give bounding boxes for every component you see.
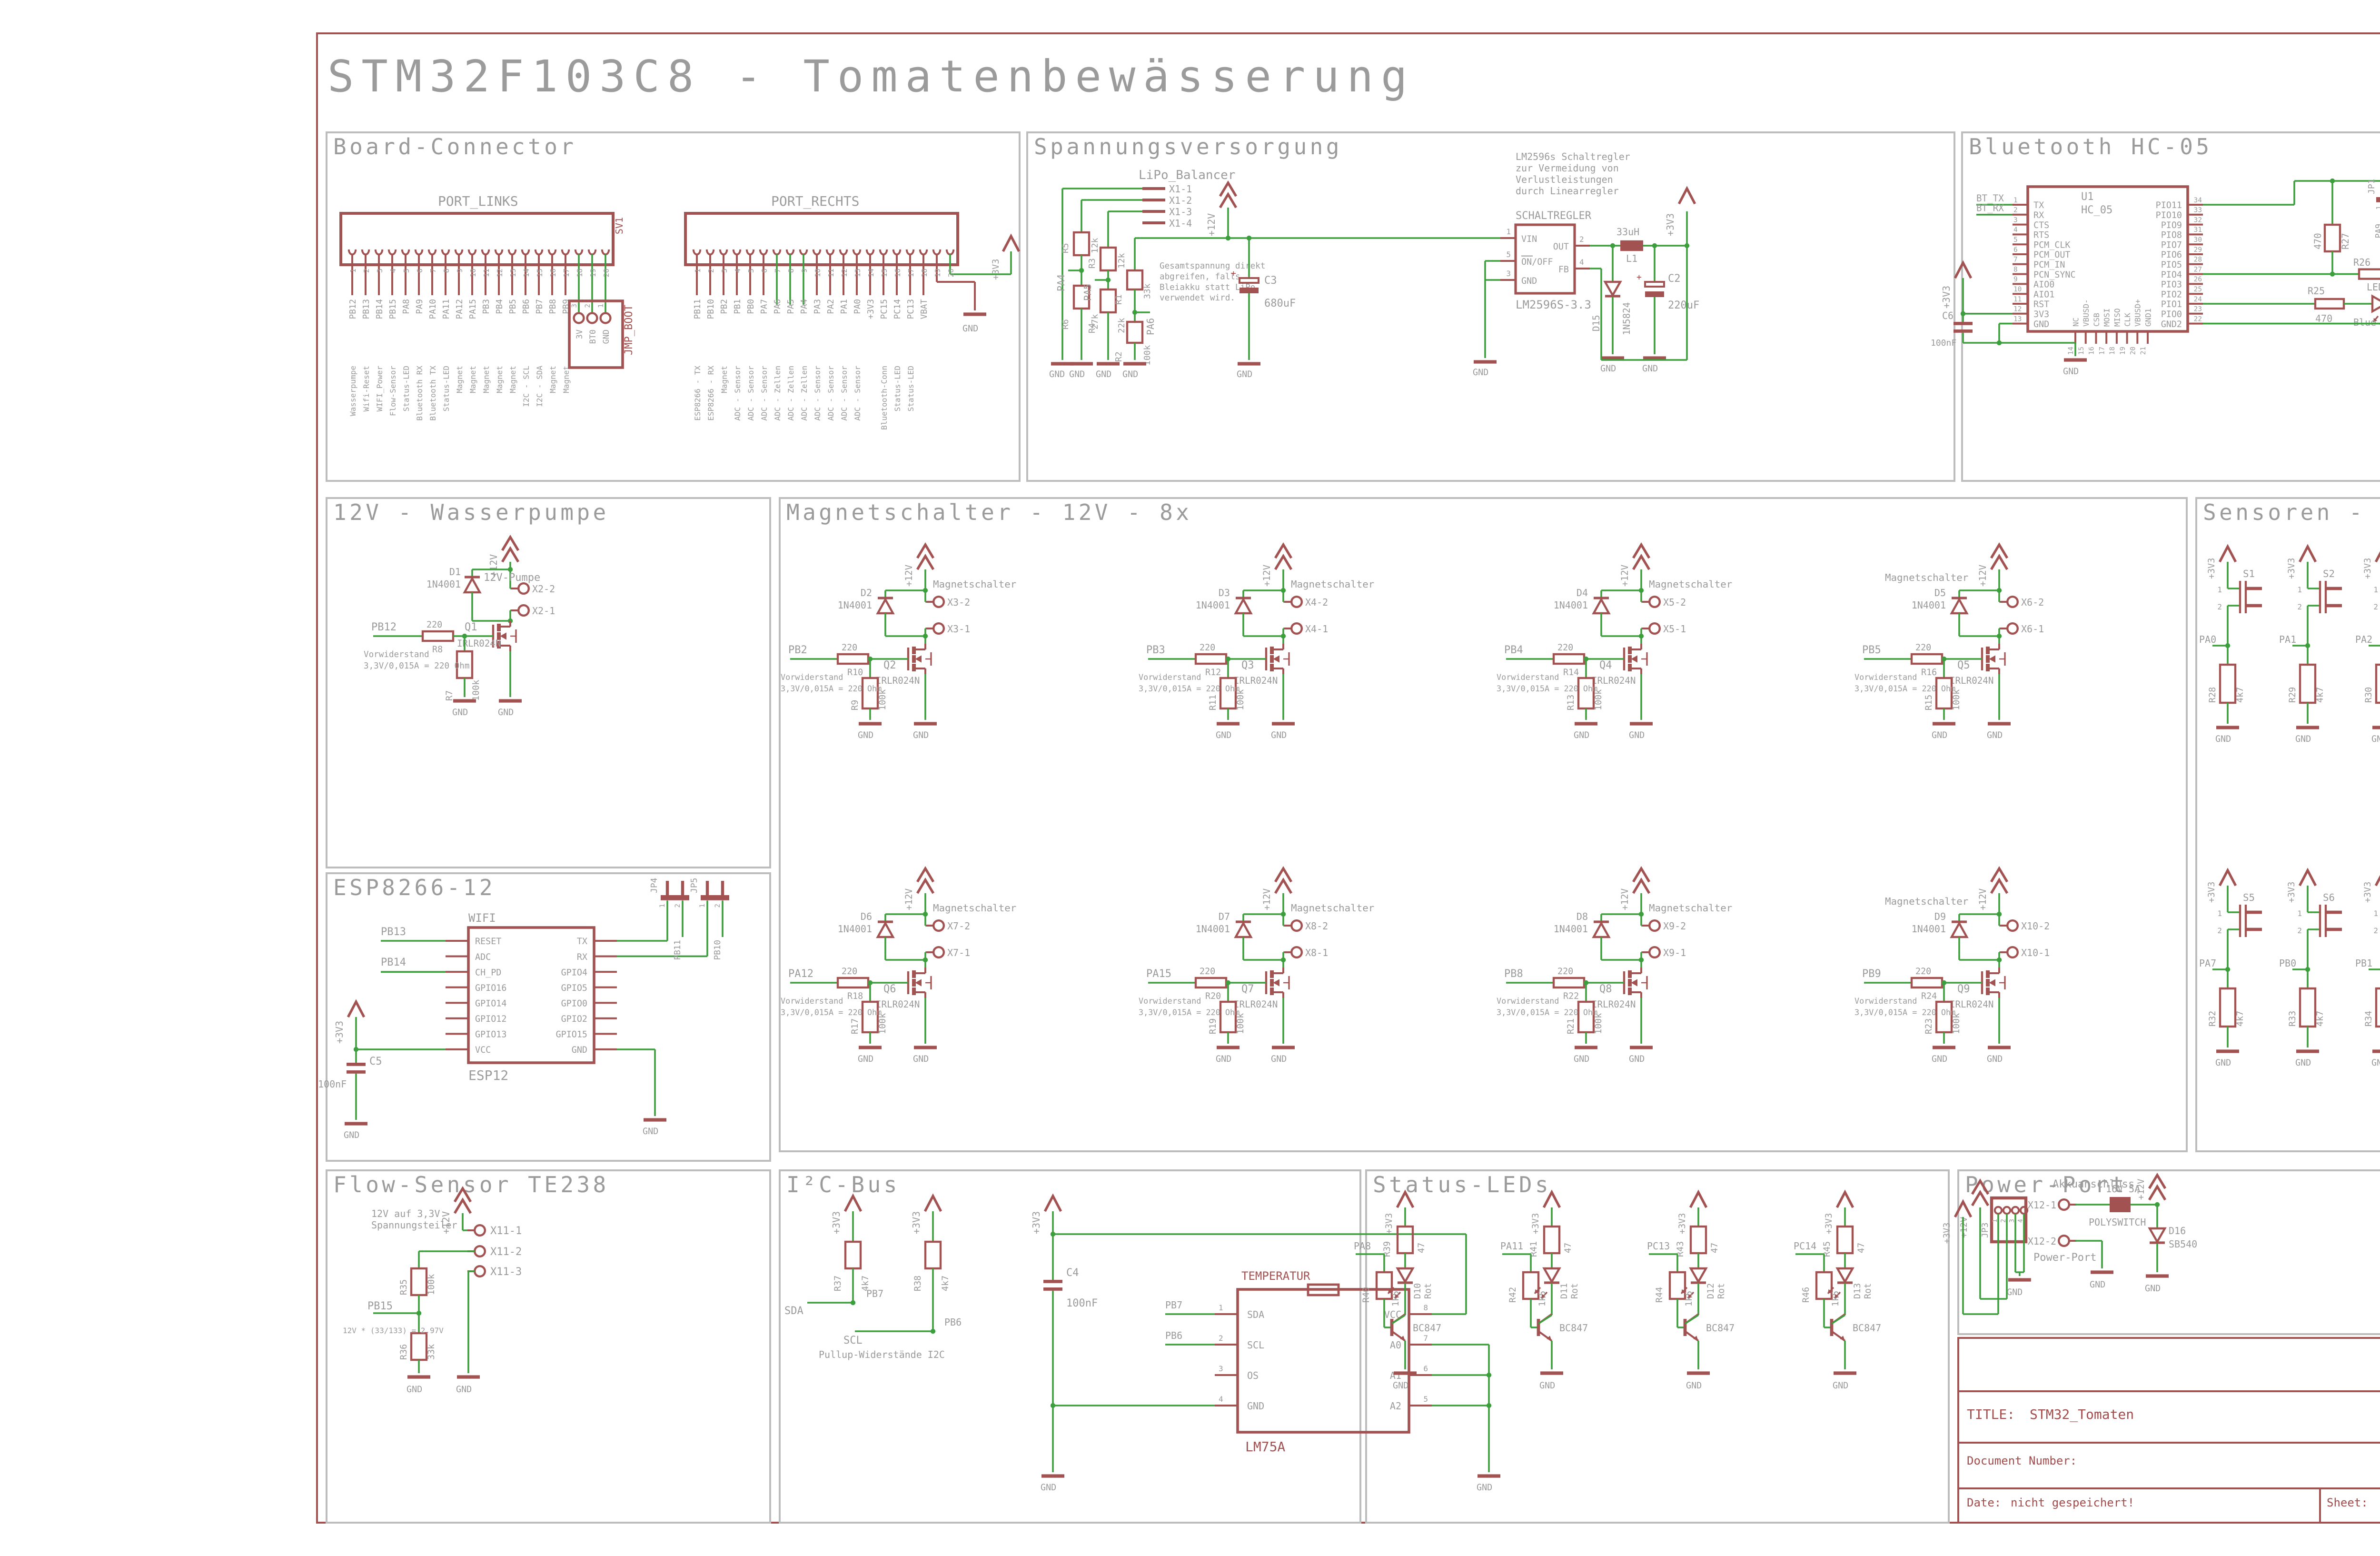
gnd-label: GND	[913, 730, 929, 740]
net-label: PA5	[1082, 284, 1093, 301]
pin-hook	[349, 249, 356, 254]
pin-number: 8	[1423, 1303, 1428, 1312]
label: 47	[1417, 1243, 1427, 1253]
part-bc847: BC847	[1706, 1322, 1735, 1334]
net-label: PB3	[482, 299, 491, 314]
p12v-label: +12V	[903, 564, 914, 587]
capacitor-C4	[1043, 1287, 1062, 1291]
label: C5	[369, 1056, 382, 1067]
ref-S2: S2	[2323, 568, 2335, 579]
label: Q8	[1599, 983, 1612, 995]
pin-name: AIO0	[2033, 280, 2054, 290]
label: R28	[2208, 687, 2218, 703]
led-D11	[1544, 1268, 1559, 1282]
pin-number: 1	[349, 269, 357, 273]
pin-name: ADC	[475, 952, 491, 962]
label: 1k5	[1684, 1291, 1694, 1307]
pin-number: 7	[773, 269, 782, 273]
pin-number: 23	[2194, 306, 2202, 313]
pin-function: Status-LED	[906, 366, 915, 411]
part-bc847: BC847	[1853, 1322, 1881, 1334]
connector-X4-2	[1291, 597, 1302, 607]
net-label: PA0	[2199, 634, 2216, 645]
p3v3-arrow	[1544, 1192, 1560, 1207]
pin-name: PIO4	[2161, 270, 2182, 280]
jmp-net-label: BT0	[588, 329, 597, 344]
p12v-arrow	[502, 549, 518, 562]
label: R16	[1921, 668, 1937, 678]
gnd-label: GND	[962, 324, 978, 334]
port-rechts-label: PORT_RECHTS	[771, 193, 859, 209]
pin-hook	[429, 249, 436, 254]
note-text: 3,3V/0,015A = 220 Ohm	[781, 1007, 882, 1017]
label: D16	[2169, 1225, 2186, 1237]
pin-function: Magnet	[455, 366, 464, 393]
pin-number: 3	[1506, 269, 1511, 278]
magnetschalter-label: Magnetschalter	[1649, 579, 1732, 590]
label: 4k7	[2315, 687, 2325, 703]
pin-name: MOSI	[2102, 308, 2112, 327]
pin-hook	[947, 249, 953, 254]
formula-text: 12V * (33/133) = 2,97V	[343, 1326, 444, 1335]
net-label: PA0	[853, 299, 863, 314]
gnd-label: GND	[1049, 369, 1065, 379]
connector-label: X12-1	[2028, 1199, 2056, 1211]
gnd-label: GND	[1932, 730, 1947, 740]
net-label: PA4	[1055, 274, 1067, 291]
label: Rot	[1863, 1283, 1873, 1299]
note-text: Pullup-Widerstände I2C	[819, 1349, 945, 1360]
pin-name: PCM_IN	[2033, 260, 2065, 270]
pin-function: ESP8266 - RX	[706, 366, 715, 421]
pin-hook	[773, 249, 780, 254]
pin-name: AIO1	[2033, 289, 2054, 299]
pin-name: CLK	[2123, 313, 2132, 327]
pin-name: TX	[577, 937, 587, 947]
connector-X9-2	[1649, 920, 1660, 931]
capacitor-C5	[347, 1063, 366, 1066]
diode-D2	[878, 599, 893, 613]
label: 47	[1856, 1243, 1866, 1253]
gnd-label: GND	[1393, 1381, 1408, 1391]
diode-D3	[1236, 599, 1251, 613]
pin-hook	[920, 249, 927, 254]
ref-jp4: JP4	[649, 878, 659, 893]
pin-name: GPIO4	[561, 968, 587, 977]
mosfet-Q3	[1273, 655, 1279, 662]
p12v-label: +12V	[1619, 564, 1630, 587]
pin-number: 18	[920, 269, 929, 277]
pin-function: Magnet	[508, 366, 517, 393]
led-D10	[1398, 1268, 1413, 1282]
pin-number: 6	[760, 269, 769, 273]
label: C6	[1942, 310, 1954, 321]
p3v3-label: +3V3	[1824, 1213, 1834, 1234]
label: Rot	[1716, 1283, 1726, 1299]
pin-number: 7	[1423, 1334, 1428, 1343]
p3v3-arrow	[2376, 547, 2380, 562]
resistor-R24	[1912, 978, 1942, 987]
label: R6	[1061, 319, 1071, 329]
p3v3-label: +3V3	[2207, 558, 2217, 579]
junction-dot	[1487, 1403, 1491, 1408]
pin-hook	[720, 249, 727, 254]
label: R38	[913, 1276, 923, 1291]
label: 100k	[471, 680, 481, 701]
pin-number: 2	[2013, 207, 2018, 214]
label: 47	[1710, 1243, 1720, 1253]
diode-D15	[1605, 282, 1620, 295]
p12v-arrow	[917, 880, 933, 893]
label: R30	[2364, 687, 2374, 703]
resistor-R14	[1554, 654, 1584, 664]
net-label: PB10	[713, 940, 723, 960]
label: 33k	[1142, 283, 1152, 299]
p3v3-arrow	[1045, 1196, 1061, 1211]
pin-number: 19	[589, 269, 597, 277]
label: Rot	[1423, 1283, 1433, 1299]
label: R22	[1563, 991, 1579, 1001]
label: D10	[1413, 1283, 1423, 1299]
label: R35	[399, 1279, 409, 1295]
pin-name: PIO1	[2161, 299, 2182, 309]
pin-number: 2	[674, 904, 682, 908]
gnd-label: GND	[1600, 364, 1616, 374]
label: IRLR024N	[1950, 999, 1993, 1010]
connector-label: X3-2	[947, 597, 970, 608]
label: 220	[426, 620, 442, 630]
label: 470	[2312, 233, 2323, 249]
net-label: PA6	[1145, 318, 1156, 335]
net-wire	[1685, 1315, 1698, 1324]
label: R37	[833, 1276, 843, 1291]
connector-label: X11-2	[490, 1246, 522, 1258]
pin-hook	[800, 249, 807, 254]
label: 220uF	[1668, 299, 1699, 311]
label: Q3	[1241, 659, 1254, 671]
label: 1N4001	[838, 923, 872, 935]
diode-D16	[2150, 1228, 2165, 1242]
net-label: PA8	[1354, 1240, 1371, 1252]
pin-number: 26	[2194, 276, 2202, 283]
pin-function: Bluetooth RX	[415, 366, 424, 421]
resistor-R44	[1670, 1272, 1685, 1299]
pin-name: PIO8	[2161, 230, 2182, 240]
resistor-R45	[1837, 1227, 1853, 1253]
p3v3-label: +3V3	[1677, 1213, 1687, 1234]
connector-label: X6-1	[2021, 623, 2044, 635]
connector-label: X10-1	[2021, 947, 2050, 958]
pin-function: ADC - Sensor	[826, 366, 835, 421]
mosfet-Q2	[915, 655, 922, 662]
pin-number: 14	[867, 269, 875, 277]
label: R46	[1801, 1287, 1811, 1303]
pin-function: ADC - Sensor	[853, 366, 862, 421]
pin-number: 16	[549, 269, 557, 277]
resistor-R39	[1398, 1227, 1413, 1253]
label: L1	[1626, 253, 1637, 264]
pin-number: 5	[2013, 236, 2018, 244]
label: D9	[1934, 911, 1946, 922]
port-links-label: PORT_LINKS	[438, 193, 518, 209]
ref-jp5: JP5	[689, 878, 699, 893]
pin-number: 1	[2217, 909, 2222, 918]
pin-number: 27	[2194, 266, 2202, 273]
pin-hook	[589, 249, 595, 254]
resistor-R38	[925, 1242, 941, 1268]
label: R9	[850, 700, 860, 710]
label: D4	[1577, 587, 1588, 598]
pin-number: 19	[933, 269, 942, 277]
pin-function: Flow-Sensor	[388, 366, 397, 416]
gnd-label: GND	[1629, 1054, 1645, 1064]
gnd-label: GND	[2295, 734, 2311, 744]
connector-label: X12-2	[2028, 1236, 2056, 1247]
resistor-R41	[1544, 1227, 1559, 1253]
p3v3-label: +3V3	[2207, 882, 2217, 903]
p12v-label: +12V	[1977, 564, 1988, 587]
label: 470	[2315, 313, 2332, 324]
label: 1N4001	[1554, 923, 1588, 935]
p3v3-label: +3V3	[2363, 558, 2373, 579]
label: R21	[1566, 1018, 1576, 1034]
pin-number: 11	[482, 269, 491, 277]
pin-name: 3V3	[2033, 309, 2049, 319]
resistor-R29	[2300, 665, 2315, 703]
diode-D6	[878, 923, 893, 937]
junction-dot	[1487, 1373, 1491, 1377]
label: 4k7	[2235, 1011, 2245, 1027]
p3v3-label: +3V3	[334, 1021, 345, 1044]
label: Q7	[1241, 983, 1254, 995]
led-D12	[1691, 1268, 1706, 1282]
net-label: PC14	[893, 299, 902, 319]
p3v3-arrow	[2220, 547, 2236, 562]
esp12-chip-box	[468, 928, 594, 1063]
diode-D1	[465, 579, 480, 592]
p12v-arrow	[1991, 880, 2007, 893]
gnd-label: GND	[2215, 734, 2231, 744]
connector-label: X8-1	[1305, 947, 1328, 958]
label: VIN	[1521, 234, 1537, 244]
label: C2	[1668, 273, 1681, 285]
pin-number: 14	[2067, 347, 2075, 355]
pin-number: 13	[853, 269, 862, 277]
part-bc847: BC847	[1559, 1322, 1588, 1334]
label: Q9	[1957, 983, 1970, 995]
connector-X11-1	[475, 1225, 485, 1236]
label: 100nF	[318, 1078, 347, 1090]
pin-hook	[853, 249, 860, 254]
net-label: PB5	[508, 299, 518, 314]
pin-name: PIO7	[2161, 240, 2182, 250]
net-label: PB0	[2279, 958, 2296, 969]
p3v3-arrow	[348, 1002, 364, 1017]
mosfet-Q7	[1273, 979, 1279, 986]
pin-name: GND	[1247, 1400, 1264, 1412]
pin-function: Status-LED	[893, 366, 902, 411]
net-label: PA9	[2373, 224, 2380, 238]
pin-name: VBUSD-	[2082, 299, 2091, 327]
pin-name: PIO5	[2161, 260, 2182, 270]
connector-label: X9-1	[1663, 947, 1686, 958]
net-label: PB2	[788, 644, 807, 656]
label: R10	[847, 668, 863, 678]
pin-number: 1	[2297, 909, 2302, 918]
capacitor-C3	[1240, 288, 1259, 293]
label: R29	[2288, 687, 2298, 703]
label: 1N4001	[1912, 599, 1946, 611]
mosfet-Q9	[1989, 979, 1995, 986]
junction-dot	[1226, 236, 1230, 240]
note-text: Vorwiderstand	[1139, 996, 1201, 1006]
ref-S1: S1	[2243, 568, 2255, 579]
label: 1N4001	[426, 579, 461, 590]
pin-hook	[880, 249, 887, 254]
label: R8	[432, 645, 443, 655]
net-label: PA1	[2279, 634, 2296, 645]
p3v3-label: +3V3	[2287, 558, 2297, 579]
schematic-canvas: STM32F103C8 - Tomatenbewässerung Board-C…	[0, 0, 2380, 1556]
gnd-label: GND	[858, 1054, 873, 1064]
pin-function: ADC - Zellen	[786, 366, 795, 421]
pin-name: PIO9	[2161, 220, 2182, 230]
connector-label: X5-2	[1663, 597, 1686, 608]
chip-label: WIFI	[468, 911, 496, 925]
label: D3	[1219, 587, 1230, 598]
p3v3-label: +3V3	[1942, 1223, 1952, 1244]
pin-number: 13	[509, 269, 517, 277]
label: 4k7	[2315, 1011, 2325, 1027]
connector-X4-1	[1291, 623, 1302, 634]
net-wire	[1538, 1315, 1552, 1324]
mosfet-Q8	[1631, 979, 1637, 986]
pin-name: A2	[1390, 1400, 1401, 1412]
p12v-arrow	[1991, 556, 2007, 569]
p12v-arrow	[455, 1200, 471, 1213]
label: D1	[449, 566, 461, 578]
label: 1k5	[1391, 1291, 1401, 1307]
note-text: Vorwiderstand	[781, 996, 843, 1006]
jmp-net-label: 3V	[575, 329, 584, 339]
net-label: SDA	[784, 1305, 803, 1317]
connector-X3-2	[933, 597, 944, 607]
gnd-label: GND	[2371, 1058, 2380, 1068]
net-label: PB5	[1862, 644, 1881, 656]
net-label: PB1	[733, 299, 743, 314]
net-label: PB14	[381, 957, 406, 968]
connector-X3-1	[933, 623, 944, 634]
p12v-arrow	[1220, 194, 1236, 208]
note-text: 3,3V/0,015A = 220 Ohm	[1139, 1007, 1240, 1017]
label: 1N4001	[1912, 923, 1946, 935]
pin-number: 10	[813, 269, 822, 277]
pin-number: 11	[2013, 296, 2022, 303]
net-wire	[1832, 1315, 1845, 1324]
pin-number: 2	[2297, 926, 2302, 935]
label: R20	[1205, 991, 1221, 1001]
pin-hook	[867, 249, 873, 254]
resistor-R42	[1523, 1272, 1538, 1299]
pin-name: PIO10	[2156, 210, 2182, 220]
label: R40	[1361, 1287, 1371, 1303]
pin-function: Status-LED	[442, 366, 451, 411]
label: R36	[399, 1344, 409, 1360]
label: 1k5	[1831, 1291, 1841, 1307]
note-text: Vorwiderstand	[1497, 672, 1559, 682]
pin-number: 1	[2375, 206, 2380, 209]
label: 220	[842, 643, 857, 653]
pin-name: PIO6	[2161, 250, 2182, 260]
gnd-label: GND	[344, 1130, 359, 1140]
label: IRLR024N	[876, 675, 920, 686]
connector-label: X5-1	[1663, 623, 1686, 635]
note-text: Vorwiderstand	[1497, 996, 1559, 1006]
pin-number: 15	[880, 269, 889, 277]
pin-name: SCL	[1247, 1339, 1264, 1351]
pin-number: 2	[1579, 235, 1584, 244]
mosfet-Q1	[500, 632, 506, 639]
gnd-label: GND	[2145, 1284, 2161, 1294]
p3v3-label: +3V3	[2363, 882, 2373, 903]
resistor-R5	[1074, 232, 1089, 255]
net-label: +3V3	[866, 299, 876, 319]
label: D7	[1219, 911, 1230, 922]
gnd-label: GND	[2371, 734, 2380, 744]
note-text: Vorwiderstand	[1139, 672, 1201, 682]
net-label: PC13	[906, 299, 916, 319]
label: 100k	[426, 1274, 436, 1295]
label: 1N4001	[1554, 599, 1588, 611]
note-text: verwendet wird.	[1160, 293, 1235, 303]
pin-hook	[602, 249, 609, 254]
pin-number: 4	[2013, 226, 2018, 234]
gnd-label: GND	[1987, 730, 2003, 740]
label: R25	[2308, 285, 2325, 297]
ref-u1: U1	[2081, 191, 2094, 203]
net-label: PB13	[362, 299, 371, 319]
capacitor-C6	[1954, 329, 1973, 333]
label: C4	[1066, 1267, 1079, 1279]
jmp-pin-number: 2	[584, 304, 592, 308]
net-label: PA5	[786, 299, 796, 314]
jumper-jp4	[661, 895, 689, 900]
gnd-label: GND	[913, 1054, 929, 1064]
pin-hook	[522, 249, 529, 254]
p3v3-arrow	[2300, 870, 2316, 886]
p3v3-arrow	[2376, 870, 2380, 886]
net-label: PB13	[381, 926, 406, 938]
resistor-R22	[1554, 978, 1584, 987]
connector-label: X7-2	[947, 920, 970, 932]
p12v-label: +12V	[440, 1211, 452, 1234]
lipo-balancer-label: LiPo_Balancer	[1139, 168, 1236, 182]
connector-label: X4-2	[1305, 597, 1328, 608]
pin-number: 1	[659, 904, 666, 908]
p3v3-arrow	[845, 1196, 861, 1211]
pin-name: NC	[2071, 318, 2080, 327]
label: IRLR024N	[457, 638, 501, 649]
label: 220	[1557, 967, 1573, 977]
pump-label: 12V-Pumpe	[484, 572, 540, 584]
label: R7	[445, 690, 455, 701]
resistor-R46	[1816, 1272, 1832, 1299]
pin-number: 6	[2013, 246, 2018, 254]
note-text: Vorwiderstand	[364, 650, 429, 659]
connector-label: X1-4	[1169, 218, 1192, 229]
pin-name: PCM_OUT	[2033, 250, 2071, 260]
net-label: PA7	[2199, 958, 2216, 969]
